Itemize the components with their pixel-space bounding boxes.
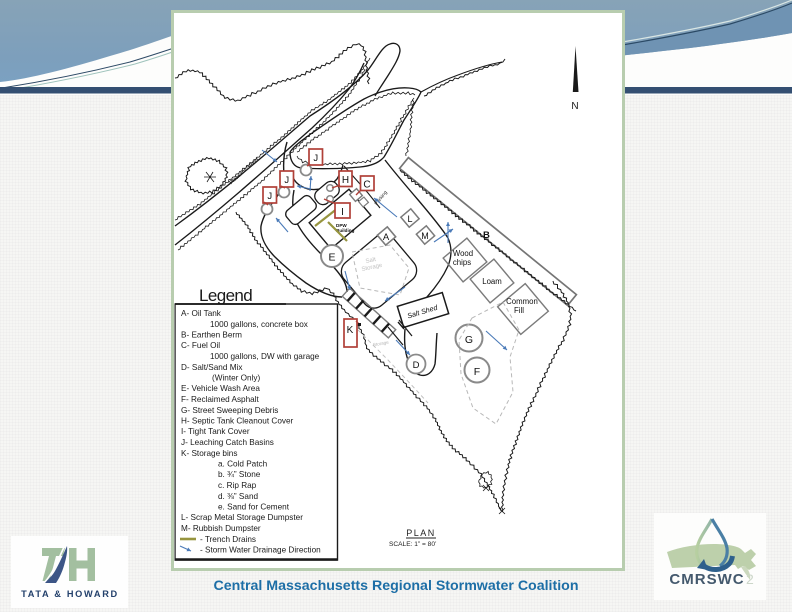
- svg-text:A- Oil Tank: A- Oil Tank: [181, 309, 222, 318]
- svg-text:I: I: [341, 207, 344, 218]
- svg-text:J: J: [267, 191, 272, 202]
- svg-text:SCALE: 1” = 80’: SCALE: 1” = 80’: [389, 541, 437, 548]
- svg-text:C- Fuel Oil: C- Fuel Oil: [181, 341, 220, 350]
- svg-text:C: C: [363, 180, 370, 191]
- svg-text:D: D: [413, 360, 420, 371]
- svg-text:b. ¾” Stone: b. ¾” Stone: [218, 470, 261, 479]
- svg-text:1000 gallons, concrete box: 1000 gallons, concrete box: [210, 320, 308, 329]
- svg-text:I- Tight Tank Cover: I- Tight Tank Cover: [181, 427, 250, 436]
- svg-text:TATA & HOWARD: TATA & HOWARD: [21, 589, 119, 599]
- svg-text:G- Street Sweeping Debris: G- Street Sweeping Debris: [181, 406, 278, 415]
- svg-text:2: 2: [746, 571, 754, 587]
- svg-text:c. Rip Rap: c. Rip Rap: [218, 481, 257, 490]
- svg-text:a. Cold Patch: a. Cold Patch: [218, 460, 268, 469]
- svg-text:B: B: [483, 230, 490, 241]
- svg-text:K: K: [347, 325, 354, 336]
- svg-text:M: M: [421, 231, 429, 241]
- svg-text:H- Septic Tank Cleanout Cover: H- Septic Tank Cleanout Cover: [181, 417, 294, 426]
- svg-text:E- Vehicle Wash Area: E- Vehicle Wash Area: [181, 384, 260, 393]
- svg-text:J: J: [313, 153, 318, 164]
- svg-text:- Storm Water Drainage Directi: - Storm Water Drainage Direction: [200, 546, 321, 555]
- svg-text:Legend: Legend: [199, 286, 252, 305]
- svg-text:J: J: [284, 175, 289, 186]
- svg-text:M- Rubbish Dumpster: M- Rubbish Dumpster: [181, 524, 261, 533]
- svg-text:- Trench Drains: - Trench Drains: [200, 535, 256, 544]
- svg-text:1000 gallons, DW with garage: 1000 gallons, DW with garage: [210, 352, 320, 361]
- svg-text:E: E: [328, 252, 335, 264]
- svg-text:e. Sand for Cement: e. Sand for Cement: [218, 503, 290, 512]
- svg-text:CMRSWC: CMRSWC: [669, 571, 744, 588]
- svg-text:F- Reclaimed Asphalt: F- Reclaimed Asphalt: [181, 395, 260, 404]
- svg-text:H: H: [342, 175, 349, 186]
- svg-text:N: N: [571, 101, 578, 112]
- svg-text:L: L: [407, 214, 412, 224]
- svg-text:L- Scrap Metal Storage Dumpste: L- Scrap Metal Storage Dumpster: [181, 513, 303, 522]
- svg-text:F: F: [474, 366, 480, 378]
- svg-text:J- Leaching Catch Basins: J- Leaching Catch Basins: [181, 438, 274, 447]
- svg-text:Wood: Wood: [453, 249, 473, 258]
- svg-text:(Winter Only): (Winter Only): [212, 374, 260, 383]
- svg-text:K- Storage bins: K- Storage bins: [181, 449, 237, 458]
- svg-text:Loam: Loam: [482, 277, 502, 286]
- svg-text:B- Earthen Berm: B- Earthen Berm: [181, 331, 242, 340]
- svg-text:G: G: [465, 334, 473, 346]
- svg-text:chips: chips: [453, 258, 471, 267]
- svg-text:Central Massachusetts Regional: Central Massachusetts Regional Stormwate…: [213, 578, 578, 594]
- svg-text:D- Salt/Sand Mix: D- Salt/Sand Mix: [181, 363, 242, 372]
- svg-text:Common: Common: [506, 297, 538, 306]
- svg-text:Fill: Fill: [514, 306, 524, 315]
- svg-text:A: A: [383, 232, 390, 243]
- svg-text:d. ⅜” Sand: d. ⅜” Sand: [218, 492, 259, 501]
- svg-text:PLAN: PLAN: [406, 528, 436, 538]
